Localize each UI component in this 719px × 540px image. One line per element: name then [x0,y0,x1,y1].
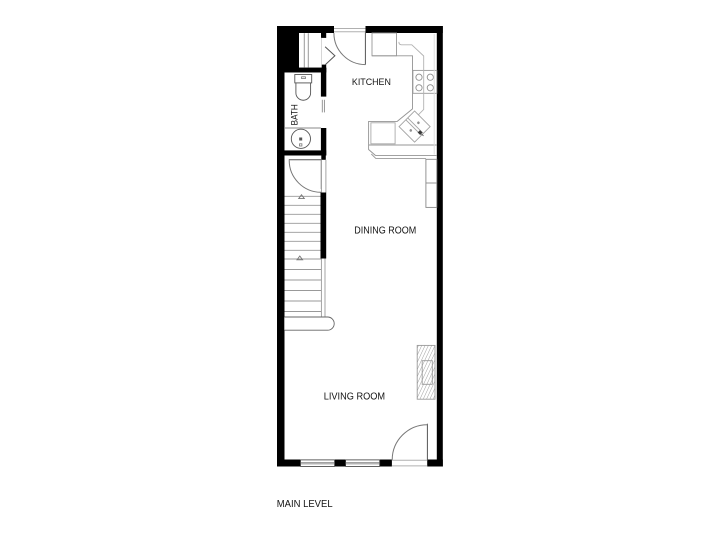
svg-text:DINING ROOM: DINING ROOM [354,226,416,237]
svg-text:BATH: BATH [289,104,300,125]
svg-text:KITCHEN: KITCHEN [352,77,391,88]
svg-text:MAIN LEVEL: MAIN LEVEL [277,499,333,510]
svg-text:LIVING ROOM: LIVING ROOM [324,391,385,402]
